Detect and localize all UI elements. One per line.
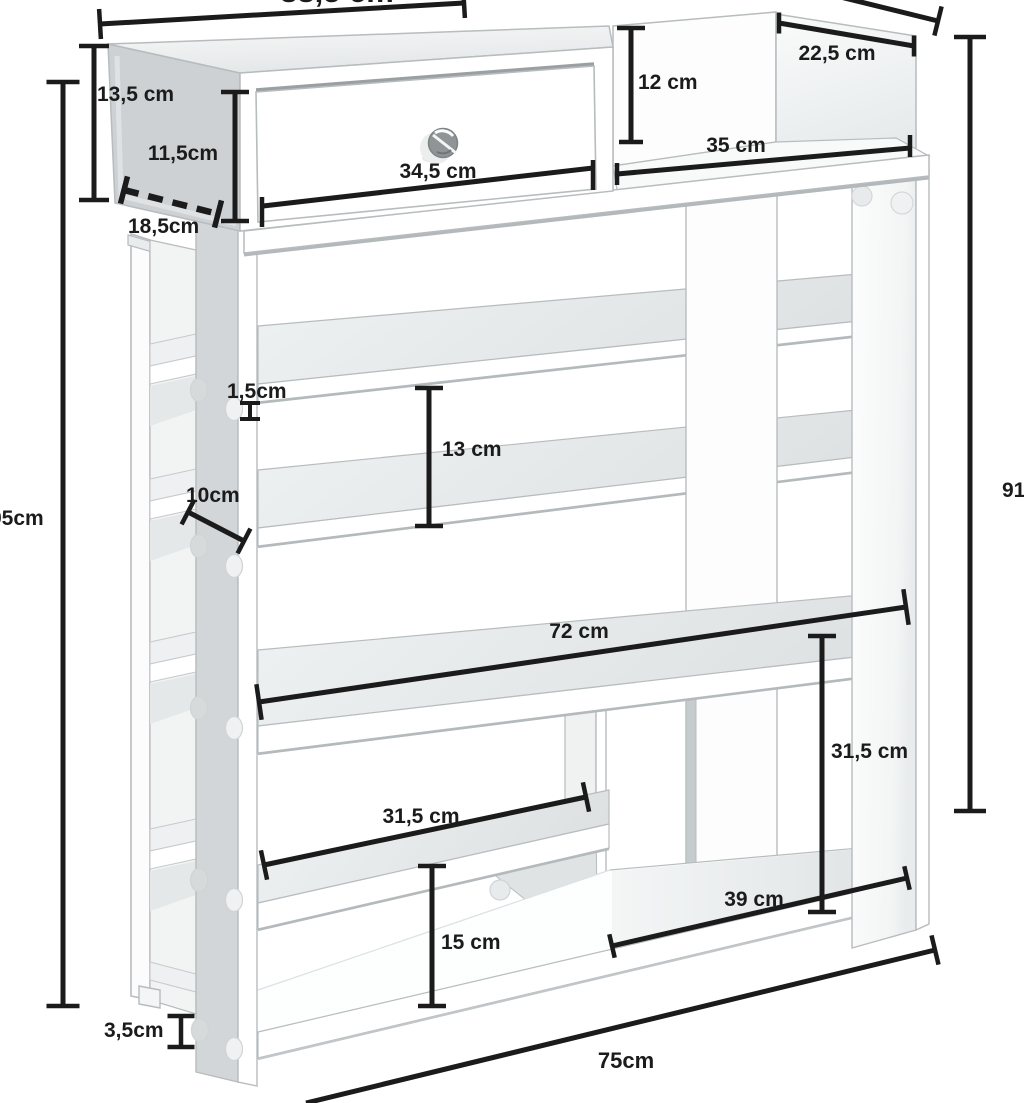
svg-text:3,5cm: 3,5cm	[104, 1019, 164, 1042]
svg-text:12 cm: 12 cm	[638, 71, 698, 94]
svg-text:95cm: 95cm	[0, 507, 44, 530]
svg-text:75cm: 75cm	[598, 1048, 654, 1073]
svg-text:13,5 cm: 13,5 cm	[97, 83, 174, 106]
svg-text:10cm: 10cm	[186, 484, 240, 507]
svg-text:34,5 cm: 34,5 cm	[399, 160, 476, 183]
svg-text:11,5cm: 11,5cm	[148, 142, 218, 165]
svg-text:15 cm: 15 cm	[441, 931, 501, 954]
svg-text:13 cm: 13 cm	[442, 438, 502, 461]
svg-text:31,5 cm: 31,5 cm	[831, 740, 908, 763]
svg-text:18,5cm: 18,5cm	[128, 215, 199, 238]
svg-text:72 cm: 72 cm	[549, 620, 609, 643]
svg-text:22,5 cm: 22,5 cm	[798, 42, 875, 65]
svg-text:91cm: 91cm	[1002, 479, 1024, 502]
svg-text:1,5cm: 1,5cm	[227, 380, 287, 403]
svg-text:31,5 cm: 31,5 cm	[382, 805, 459, 828]
svg-text:39 cm: 39 cm	[724, 888, 784, 911]
svg-text:35 cm: 35 cm	[706, 134, 766, 157]
svg-text:88,5 cm: 88,5 cm	[280, 0, 394, 9]
